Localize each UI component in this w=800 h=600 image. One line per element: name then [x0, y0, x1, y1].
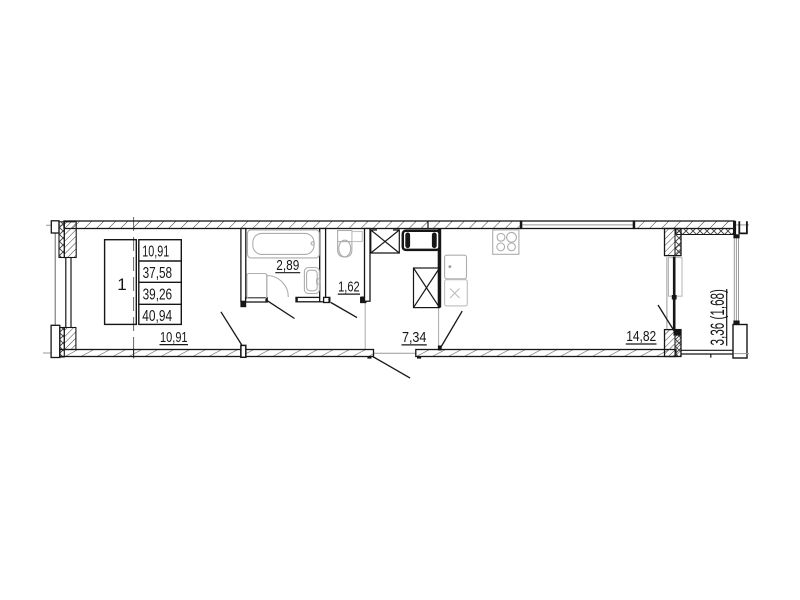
- svg-text:39,26: 39,26: [143, 287, 173, 304]
- svg-text:10,91: 10,91: [142, 244, 169, 261]
- svg-text:37,58: 37,58: [143, 265, 173, 282]
- svg-text:7,34: 7,34: [402, 329, 427, 346]
- svg-text:3,36 (1,68): 3,36 (1,68): [707, 289, 729, 346]
- svg-text:14,82: 14,82: [626, 328, 656, 345]
- svg-text:10,91: 10,91: [160, 329, 188, 346]
- svg-text:1: 1: [117, 275, 126, 294]
- svg-text:2,89: 2,89: [276, 257, 299, 274]
- svg-text:40,94: 40,94: [142, 308, 172, 325]
- svg-text:1,62: 1,62: [338, 278, 360, 295]
